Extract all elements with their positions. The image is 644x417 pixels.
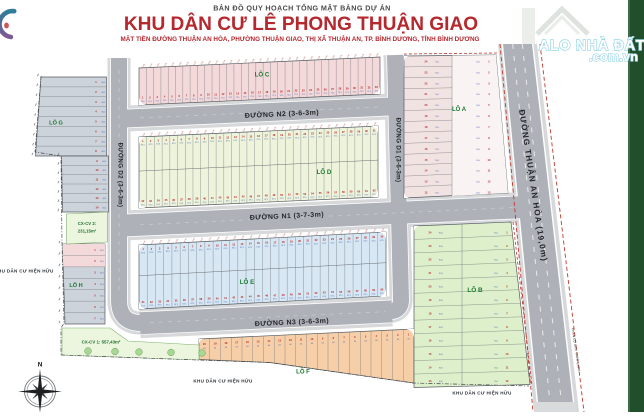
svg-text:67,5: 67,5	[156, 204, 160, 206]
svg-text:67,5: 67,5	[187, 202, 191, 204]
svg-text:64: 64	[354, 341, 356, 343]
svg-text:72,5: 72,5	[221, 98, 225, 100]
svg-text:67,5: 67,5	[322, 296, 326, 298]
svg-text:67,5: 67,5	[180, 143, 184, 145]
svg-text:67,5: 67,5	[347, 242, 351, 244]
svg-text:67,5: 67,5	[191, 250, 195, 252]
svg-text:67,5: 67,5	[355, 294, 359, 296]
svg-text:74,0: 74,0	[435, 105, 439, 107]
svg-text:60,1: 60,1	[100, 318, 104, 320]
svg-text:74,0: 74,0	[435, 138, 439, 140]
svg-text:74,0: 74,0	[476, 72, 480, 74]
svg-text:74,0: 74,0	[435, 116, 439, 118]
svg-text:74,0: 74,0	[476, 182, 480, 184]
svg-text:74,0: 74,0	[476, 116, 480, 118]
svg-text:KHU DÂN CƯ LÊ PHONG THUẬN GIAO: KHU DÂN CƯ LÊ PHONG THUẬN GIAO	[124, 13, 478, 35]
svg-text:67,5: 67,5	[372, 293, 376, 295]
svg-text:ĐƯỜNG D2 (3-6-3m): ĐƯỜNG D2 (3-6-3m)	[117, 143, 125, 208]
svg-text:67,5: 67,5	[150, 305, 154, 307]
svg-text:67,5: 67,5	[357, 195, 361, 197]
svg-text:72,5: 72,5	[265, 96, 269, 98]
svg-text:67,5: 67,5	[174, 251, 178, 253]
svg-text:67,5: 67,5	[349, 135, 353, 137]
svg-text:67,5: 67,5	[232, 248, 236, 250]
svg-text:.com.vn: .com.vn	[589, 49, 638, 64]
svg-text:72,5: 72,5	[185, 99, 189, 101]
svg-text:74,0: 74,0	[476, 94, 480, 96]
svg-text:74,0: 74,0	[435, 61, 439, 63]
svg-text:67,5: 67,5	[257, 199, 261, 201]
svg-text:60,1: 60,1	[102, 141, 106, 143]
svg-text:67,5: 67,5	[218, 141, 222, 143]
svg-text:67,5: 67,5	[226, 141, 230, 143]
svg-text:67,5: 67,5	[232, 301, 236, 303]
svg-text:72,5: 72,5	[258, 96, 262, 98]
svg-text:231,15m²: 231,15m²	[78, 229, 97, 234]
svg-text:72,5: 72,5	[316, 93, 320, 95]
svg-text:74,0: 74,0	[435, 171, 439, 173]
svg-text:67,5: 67,5	[241, 140, 245, 142]
svg-text:67,5: 67,5	[156, 144, 160, 146]
svg-text:64: 64	[203, 348, 205, 350]
svg-text:74,0: 74,0	[435, 149, 439, 151]
svg-text:67,5: 67,5	[257, 139, 261, 141]
svg-text:67,5: 67,5	[265, 246, 269, 248]
svg-text:60,1: 60,1	[102, 151, 106, 153]
svg-text:67,5: 67,5	[339, 242, 343, 244]
svg-text:74,0: 74,0	[476, 61, 480, 63]
svg-text:67,5: 67,5	[334, 196, 338, 198]
svg-text:67,5: 67,5	[141, 252, 145, 254]
svg-text:72,5: 72,5	[170, 100, 174, 102]
svg-text:67,5: 67,5	[287, 138, 291, 140]
svg-text:74,0: 74,0	[494, 260, 498, 262]
svg-text:67,5: 67,5	[355, 241, 359, 243]
svg-text:72,5: 72,5	[214, 98, 218, 100]
svg-text:64: 64	[365, 340, 367, 342]
svg-text:67,5: 67,5	[287, 198, 291, 200]
svg-text:72,5: 72,5	[207, 98, 211, 100]
svg-text:74,0: 74,0	[494, 313, 498, 315]
svg-text:67,5: 67,5	[249, 200, 253, 202]
svg-text:67,5: 67,5	[347, 295, 351, 297]
svg-text:64: 64	[214, 347, 216, 349]
svg-text:64: 64	[311, 343, 313, 345]
svg-text:80,5: 80,5	[439, 273, 443, 275]
svg-text:LÔ A: LÔ A	[452, 105, 467, 113]
svg-text:67,5: 67,5	[257, 246, 261, 248]
svg-text:67,5: 67,5	[298, 297, 302, 299]
svg-text:74,0: 74,0	[476, 160, 480, 162]
svg-text:67,5: 67,5	[166, 251, 170, 253]
svg-text:72,5: 72,5	[155, 101, 159, 103]
svg-text:74,0: 74,0	[476, 149, 480, 151]
svg-text:N: N	[38, 362, 43, 369]
svg-text:67,5: 67,5	[207, 249, 211, 251]
svg-text:LÔ B: LÔ B	[467, 285, 483, 294]
svg-text:67,5: 67,5	[224, 301, 228, 303]
svg-text:67,5: 67,5	[172, 143, 176, 145]
svg-text:60,1: 60,1	[103, 198, 107, 200]
svg-text:67,5: 67,5	[150, 252, 154, 254]
svg-text:67,5: 67,5	[326, 196, 330, 198]
svg-text:80,5: 80,5	[439, 287, 443, 289]
svg-text:74,0: 74,0	[476, 193, 480, 195]
svg-text:74,0: 74,0	[435, 160, 439, 162]
svg-text:67,5: 67,5	[203, 142, 207, 144]
svg-text:60,1: 60,1	[100, 273, 104, 275]
svg-text:72,5: 72,5	[250, 96, 254, 98]
svg-text:LÔ G: LÔ G	[49, 119, 63, 127]
svg-text:64: 64	[408, 338, 410, 340]
svg-text:72,5: 72,5	[360, 91, 364, 93]
svg-text:64: 64	[236, 346, 238, 348]
svg-text:67,5: 67,5	[341, 195, 345, 197]
svg-text:67,5: 67,5	[306, 244, 310, 246]
svg-text:74,0: 74,0	[435, 182, 439, 184]
svg-text:80,5: 80,5	[439, 381, 443, 383]
svg-text:67,5: 67,5	[182, 303, 186, 305]
svg-text:67,5: 67,5	[272, 138, 276, 140]
svg-text:67,5: 67,5	[295, 137, 299, 139]
svg-text:60,1: 60,1	[102, 82, 106, 84]
svg-text:67,5: 67,5	[199, 303, 203, 305]
svg-text:67,5: 67,5	[195, 202, 199, 204]
svg-text:74,0: 74,0	[435, 127, 439, 129]
svg-text:64: 64	[386, 339, 388, 341]
svg-text:74,0: 74,0	[435, 193, 439, 195]
svg-text:80,5: 80,5	[439, 260, 443, 262]
svg-text:72,5: 72,5	[243, 97, 247, 99]
svg-text:67,5: 67,5	[172, 203, 176, 205]
svg-text:72,5: 72,5	[148, 101, 152, 103]
svg-text:67,5: 67,5	[264, 139, 268, 141]
svg-text:67,5: 67,5	[191, 303, 195, 305]
svg-text:74,0: 74,0	[435, 83, 439, 85]
svg-text:67,5: 67,5	[158, 252, 162, 254]
svg-text:64: 64	[375, 340, 377, 342]
svg-text:80,5: 80,5	[439, 300, 443, 302]
svg-text:67,5: 67,5	[226, 201, 230, 203]
svg-text:67,5: 67,5	[141, 144, 145, 146]
svg-text:67,5: 67,5	[331, 296, 335, 298]
svg-text:67,5: 67,5	[289, 298, 293, 300]
svg-text:60,1: 60,1	[103, 189, 107, 191]
svg-text:67,5: 67,5	[149, 204, 153, 206]
svg-text:67,5: 67,5	[207, 302, 211, 304]
svg-text:67,5: 67,5	[174, 304, 178, 306]
svg-text:60,1: 60,1	[103, 179, 107, 181]
svg-text:67,5: 67,5	[341, 135, 345, 137]
svg-text:67,5: 67,5	[187, 142, 191, 144]
svg-text:74,0: 74,0	[476, 171, 480, 173]
svg-text:74,0: 74,0	[494, 246, 498, 248]
svg-text:67,5: 67,5	[280, 138, 284, 140]
svg-text:67,5: 67,5	[364, 241, 368, 243]
svg-text:67,5: 67,5	[314, 243, 318, 245]
svg-text:LÔ H: LÔ H	[69, 281, 82, 289]
svg-text:67,5: 67,5	[199, 249, 203, 251]
svg-text:67,5: 67,5	[166, 304, 170, 306]
svg-text:67,5: 67,5	[210, 201, 214, 203]
svg-text:67,5: 67,5	[322, 243, 326, 245]
svg-text:60,1: 60,1	[102, 131, 106, 133]
svg-text:67,5: 67,5	[311, 197, 315, 199]
svg-text:74,0: 74,0	[476, 138, 480, 140]
svg-text:BẢN ĐỒ QUY HOẠCH TỔNG MẶT BẰNG: BẢN ĐỒ QUY HOẠCH TỔNG MẶT BẰNG DỰ ÁN	[213, 3, 391, 13]
svg-text:67,5: 67,5	[248, 247, 252, 249]
svg-text:74,0: 74,0	[494, 340, 498, 342]
svg-text:67,5: 67,5	[372, 240, 376, 242]
svg-text:67,5: 67,5	[224, 248, 228, 250]
svg-text:80,5: 80,5	[439, 246, 443, 248]
svg-text:67,5: 67,5	[265, 299, 269, 301]
svg-text:67,5: 67,5	[295, 198, 299, 200]
svg-text:67,5: 67,5	[149, 144, 153, 146]
svg-text:67,5: 67,5	[273, 299, 277, 301]
svg-text:72,5: 72,5	[199, 99, 203, 101]
svg-text:64: 64	[343, 341, 345, 343]
svg-text:67,5: 67,5	[240, 247, 244, 249]
svg-text:72,5: 72,5	[353, 92, 357, 94]
svg-text:72,5: 72,5	[287, 95, 291, 97]
svg-text:67,5: 67,5	[164, 204, 168, 206]
svg-text:67,5: 67,5	[306, 297, 310, 299]
svg-text:74,0: 74,0	[494, 287, 498, 289]
svg-text:80,5: 80,5	[439, 354, 443, 356]
svg-text:74,0: 74,0	[435, 72, 439, 74]
svg-text:CX-CV 1: 557,43m²: CX-CV 1: 557,43m²	[82, 340, 121, 345]
svg-text:67,5: 67,5	[303, 137, 307, 139]
svg-text:67,5: 67,5	[326, 136, 330, 138]
svg-text:60,1: 60,1	[103, 170, 107, 172]
svg-text:64: 64	[279, 344, 281, 346]
svg-text:72,5: 72,5	[192, 99, 196, 101]
svg-text:67,5: 67,5	[380, 240, 384, 242]
svg-text:67,5: 67,5	[203, 202, 207, 204]
svg-text:67,5: 67,5	[339, 295, 343, 297]
svg-text:74,0: 74,0	[476, 83, 480, 85]
svg-text:72,5: 72,5	[163, 100, 167, 102]
svg-text:72,5: 72,5	[228, 97, 232, 99]
svg-text:64: 64	[289, 344, 291, 346]
svg-text:60,1: 60,1	[100, 261, 104, 263]
svg-text:67,5: 67,5	[289, 245, 293, 247]
svg-text:72,5: 72,5	[309, 94, 313, 96]
svg-text:64: 64	[322, 342, 324, 344]
svg-text:64: 64	[397, 339, 399, 341]
svg-text:67,5: 67,5	[273, 245, 277, 247]
svg-text:74,0: 74,0	[435, 94, 439, 96]
svg-text:64: 64	[300, 343, 302, 345]
svg-text:74,0: 74,0	[476, 105, 480, 107]
svg-text:72,5: 72,5	[272, 95, 276, 97]
svg-text:KHU DÂN CƯ HIỆN HỮU: KHU DÂN CƯ HIỆN HỮU	[452, 389, 512, 396]
svg-text:60,1: 60,1	[102, 122, 106, 124]
svg-text:67,5: 67,5	[158, 305, 162, 307]
svg-text:LÔ D: LÔ D	[317, 168, 332, 176]
svg-text:74,0: 74,0	[494, 354, 498, 356]
svg-text:60,1: 60,1	[102, 102, 106, 104]
svg-text:67,5: 67,5	[281, 298, 285, 300]
svg-text:67,5: 67,5	[280, 198, 284, 200]
svg-text:64: 64	[225, 347, 227, 349]
svg-text:64: 64	[246, 346, 248, 348]
svg-text:74,0: 74,0	[476, 127, 480, 129]
svg-text:KHU DÂN CƯ HIỆN HỮU: KHU DÂN CƯ HIỆN HỮU	[0, 267, 54, 274]
svg-text:67,5: 67,5	[215, 302, 219, 304]
svg-text:64: 64	[268, 345, 270, 347]
svg-text:67,5: 67,5	[215, 248, 219, 250]
svg-text:64: 64	[257, 345, 259, 347]
svg-text:60,1: 60,1	[100, 284, 104, 286]
svg-text:67,5: 67,5	[210, 141, 214, 143]
svg-text:60,1: 60,1	[100, 307, 104, 309]
svg-text:80,5: 80,5	[439, 367, 443, 369]
svg-text:67,5: 67,5	[182, 250, 186, 252]
svg-text:67,5: 67,5	[314, 296, 318, 298]
svg-text:80,5: 80,5	[439, 340, 443, 342]
svg-text:74,0: 74,0	[494, 273, 498, 275]
svg-text:72,5: 72,5	[345, 92, 349, 94]
svg-text:60,1: 60,1	[100, 296, 104, 298]
svg-text:67,5: 67,5	[257, 300, 261, 302]
svg-text:67,5: 67,5	[331, 242, 335, 244]
svg-text:67,5: 67,5	[357, 134, 361, 136]
svg-text:60,1: 60,1	[102, 112, 106, 114]
svg-text:67,5: 67,5	[349, 195, 353, 197]
svg-text:67,5: 67,5	[365, 134, 369, 136]
svg-text:74,0: 74,0	[494, 233, 498, 235]
svg-text:67,5: 67,5	[303, 197, 307, 199]
svg-text:67,5: 67,5	[311, 137, 315, 139]
svg-text:67,5: 67,5	[234, 140, 238, 142]
svg-text:CX-CV 2:: CX-CV 2:	[78, 221, 97, 226]
svg-text:60,1: 60,1	[103, 161, 107, 163]
svg-text:67,5: 67,5	[241, 200, 245, 202]
svg-text:LÔ E: LÔ E	[240, 278, 254, 286]
svg-text:67,5: 67,5	[180, 203, 184, 205]
svg-text:80,5: 80,5	[439, 327, 443, 329]
svg-text:67,5: 67,5	[298, 244, 302, 246]
svg-text:67,5: 67,5	[218, 201, 222, 203]
svg-text:67,5: 67,5	[334, 136, 338, 138]
svg-text:72,5: 72,5	[177, 100, 181, 102]
svg-text:67,5: 67,5	[248, 300, 252, 302]
svg-text:67,5: 67,5	[240, 300, 244, 302]
svg-text:74,0: 74,0	[494, 327, 498, 329]
svg-text:67,5: 67,5	[164, 143, 168, 145]
svg-text:72,5: 72,5	[294, 94, 298, 96]
svg-text:72,5: 72,5	[301, 94, 305, 96]
svg-text:67,5: 67,5	[249, 139, 253, 141]
svg-text:74,0: 74,0	[494, 381, 498, 383]
svg-text:72,5: 72,5	[338, 92, 342, 94]
svg-text:LÔ F: LÔ F	[296, 368, 310, 376]
svg-text:60,1: 60,1	[100, 250, 104, 252]
svg-text:LÔ C: LÔ C	[255, 71, 270, 79]
svg-text:67,5: 67,5	[318, 196, 322, 198]
svg-text:72,5: 72,5	[367, 91, 371, 93]
svg-text:67,5: 67,5	[264, 199, 268, 201]
svg-text:74,0: 74,0	[494, 300, 498, 302]
svg-text:80,5: 80,5	[439, 233, 443, 235]
svg-text:80,5: 80,5	[439, 313, 443, 315]
svg-text:KHU DÂN CƯ HIỆN HỮU: KHU DÂN CƯ HIỆN HỮU	[193, 377, 253, 384]
svg-text:67,5: 67,5	[364, 294, 368, 296]
svg-text:67,5: 67,5	[234, 200, 238, 202]
svg-text:ĐƯỜNG D1 (3-6-3m): ĐƯỜNG D1 (3-6-3m)	[395, 118, 403, 183]
svg-text:72,5: 72,5	[331, 93, 335, 95]
svg-text:74,0: 74,0	[494, 367, 498, 369]
svg-text:67,5: 67,5	[272, 199, 276, 201]
svg-text:60,1: 60,1	[102, 92, 106, 94]
svg-text:67,5: 67,5	[195, 142, 199, 144]
svg-text:72,5: 72,5	[323, 93, 327, 95]
svg-text:64: 64	[332, 342, 334, 344]
svg-text:60,1: 60,1	[103, 207, 107, 209]
svg-text:72,5: 72,5	[236, 97, 240, 99]
svg-text:67,5: 67,5	[372, 134, 376, 136]
svg-text:67,5: 67,5	[281, 245, 285, 247]
svg-text:67,5: 67,5	[318, 136, 322, 138]
svg-text:67,5: 67,5	[365, 194, 369, 196]
svg-text:72,5: 72,5	[280, 95, 284, 97]
